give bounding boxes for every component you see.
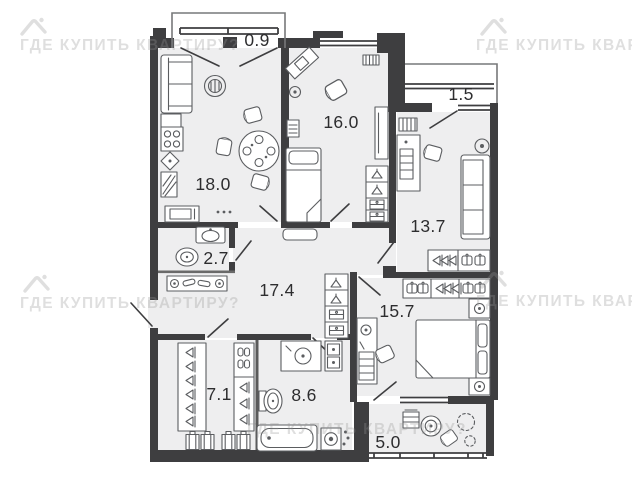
toilet-wc-icon	[176, 248, 198, 266]
dining-table	[239, 131, 279, 171]
wc-small-bottom-wall	[158, 271, 235, 274]
right-block-vertical-wall	[388, 50, 405, 103]
washbasin-wc-icon	[196, 227, 225, 243]
sofa-kitchen	[161, 55, 192, 113]
radiator-bedroom-top-icon	[363, 55, 379, 65]
watermark-house-icon	[25, 275, 48, 291]
bath-cabinet-icon	[325, 341, 342, 371]
label-kitchen-living: 18.0	[195, 174, 230, 194]
closet-block-top-wall-b	[237, 334, 311, 340]
label-balcony-top-left: 0.9	[244, 30, 269, 50]
label-room-right: 13.7	[410, 216, 445, 236]
rooms-divider-13-15	[383, 272, 490, 278]
floor-plan: 18.0 0.9 16.0 1.5 13.7 2.7 17.4 15.7 7.1…	[0, 0, 632, 480]
label-hallway: 17.4	[259, 280, 294, 300]
watermark-house-icon	[22, 18, 45, 34]
wardrobe-shelves	[234, 343, 254, 431]
fridge-icon	[161, 172, 177, 197]
divider-stub	[383, 266, 396, 274]
bedroom-top-window	[320, 38, 377, 48]
room-right-window	[458, 106, 490, 111]
wardrobe-rod	[178, 343, 206, 431]
hall-bench	[283, 229, 317, 240]
label-wardrobe: 7.1	[206, 384, 231, 404]
wc-small-right-wall	[229, 226, 235, 248]
bedroom-top-bottom-wall-r	[352, 222, 396, 228]
tv-unit-icon	[375, 107, 388, 159]
desk-bedroom-right	[357, 318, 377, 384]
watermark-text: ГДЕ КУПИТЬ КВАРТИРУ?	[476, 293, 632, 310]
balcony-bottom-glazing	[369, 453, 487, 458]
label-bedroom-top: 16.0	[323, 112, 358, 132]
wardrobe-bedroom-top	[366, 166, 388, 222]
nightstand-bottom	[469, 378, 490, 395]
watermark-text: ГДЕ КУПИТЬ КВАРТИРУ?	[20, 37, 240, 54]
label-bedroom-right: 15.7	[379, 301, 414, 321]
sofa-room-right	[461, 155, 490, 239]
toilet-bath-icon	[259, 389, 282, 413]
bedroom-top-wall-left	[287, 38, 320, 48]
vanity-sink-icon	[281, 341, 321, 371]
window-pier-out	[313, 31, 343, 39]
outer-wall-right	[490, 103, 498, 400]
label-bathroom: 8.6	[291, 385, 316, 405]
outer-wall-left-upper	[150, 36, 158, 300]
label-wc-small: 2.7	[203, 248, 228, 268]
label-balcony-top-right: 1.5	[448, 84, 473, 104]
closet-block-top-wall-a	[156, 334, 205, 340]
microwave-icon	[165, 206, 199, 222]
hall-closet	[325, 274, 348, 338]
kitchen-counter	[161, 114, 181, 127]
radiator-room-right-icon	[399, 118, 417, 131]
bedroom-balcony-window	[400, 398, 448, 403]
balcony-bottom-divider-solid	[448, 396, 490, 404]
hall-shoe-shelf	[167, 276, 227, 291]
dining-chair-2	[216, 137, 233, 156]
socket-dots	[217, 211, 232, 214]
watermark-text: ГДЕ КУПИТЬ КВАРТИРУ?	[20, 295, 240, 312]
desk-room-right	[397, 135, 420, 191]
outer-wall-left-lower	[150, 328, 158, 462]
bedroom-top-bottom-wall-l	[289, 222, 330, 228]
watermark-house-icon	[482, 18, 505, 34]
wall-shelf-icon	[287, 120, 299, 137]
single-bed	[286, 148, 321, 222]
double-bed	[416, 320, 490, 378]
watermark-text: ГДЕ КУПИТЬ КВАРТИРУ?	[247, 421, 467, 438]
stove-icon	[161, 127, 183, 151]
outer-wall-bottom	[150, 450, 369, 462]
closet-room-right	[428, 250, 490, 271]
room-right-top-wall	[388, 103, 432, 112]
balcony-bottom-right-wall	[486, 400, 494, 456]
watermark-text: ГДЕ КУПИТЬ КВАРТИРУ?	[476, 37, 632, 54]
